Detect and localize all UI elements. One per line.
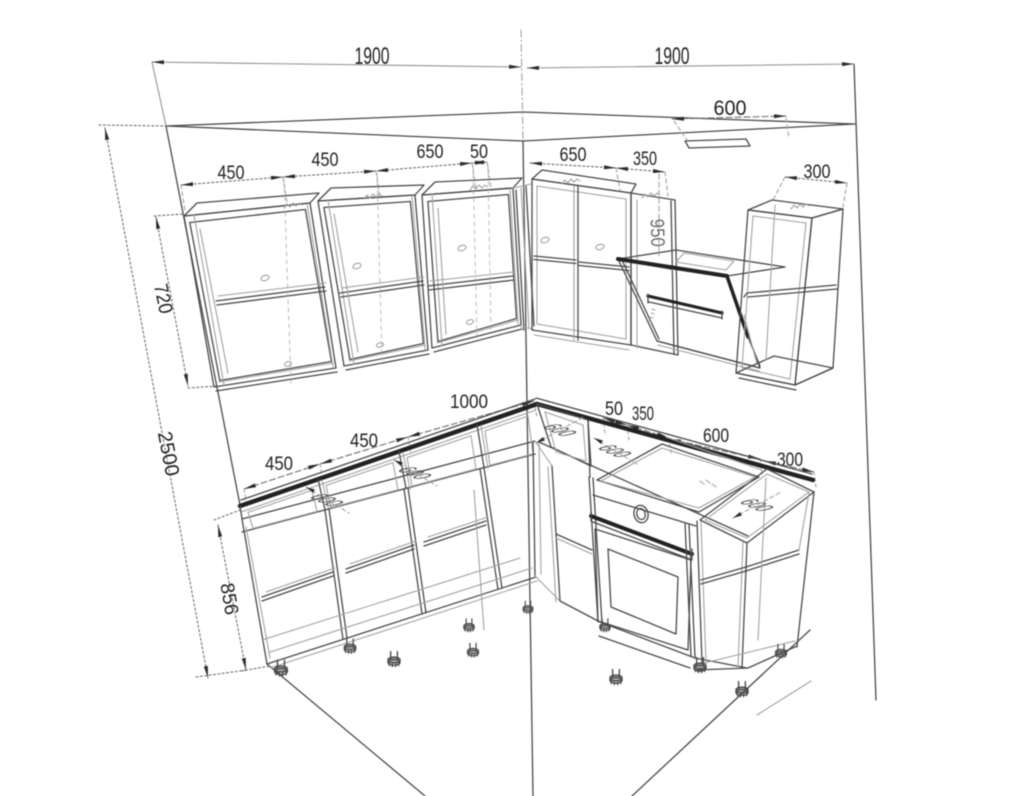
svg-text:450: 450 [312,149,339,171]
svg-text:350: 350 [633,148,657,170]
svg-text:600: 600 [703,425,729,447]
svg-text:1000: 1000 [450,391,488,413]
svg-text:450: 450 [350,430,378,452]
svg-text:600: 600 [714,97,747,120]
svg-text:450: 450 [265,453,293,475]
svg-text:50: 50 [470,141,488,163]
svg-text:650: 650 [560,144,587,166]
svg-text:950: 950 [646,218,669,247]
svg-text:450: 450 [218,162,245,184]
svg-text:350: 350 [632,403,654,425]
svg-text:1900: 1900 [655,43,690,70]
svg-text:650: 650 [417,141,444,163]
svg-text:1900: 1900 [355,43,390,70]
svg-text:300: 300 [804,161,831,183]
svg-text:50: 50 [605,398,623,420]
